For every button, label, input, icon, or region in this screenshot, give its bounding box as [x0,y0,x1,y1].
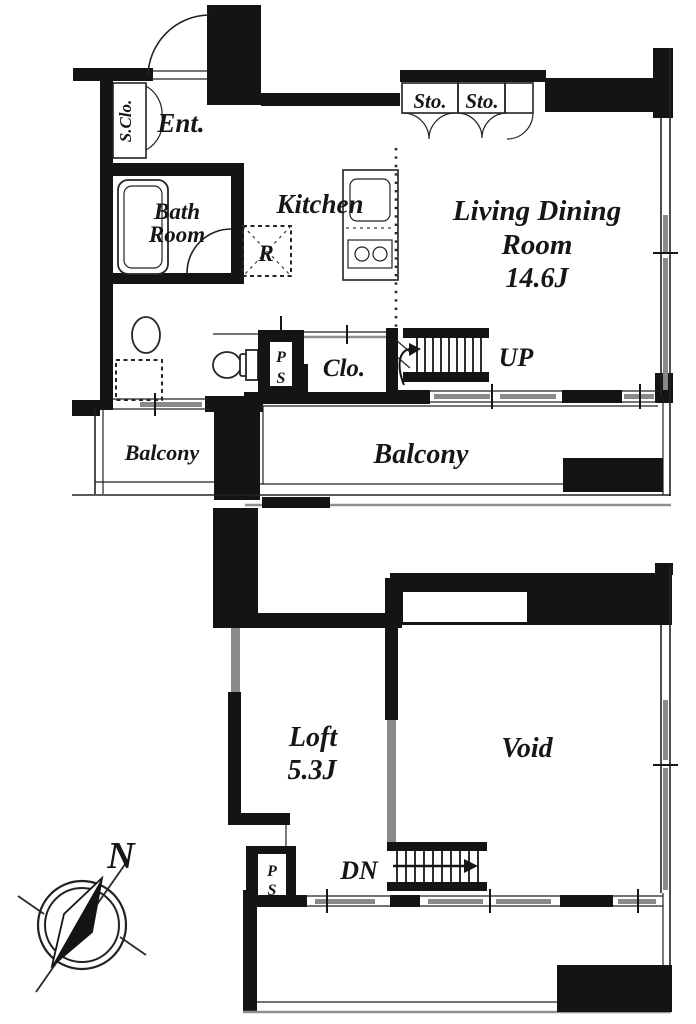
stairs-down-arrowhead-icon [464,859,478,873]
floor-plan-drawing: S.Clo. Ent. Bath Room [0,0,696,1024]
washroom [116,317,262,400]
pipe-space-upper: P S [258,330,308,392]
toilet-icon [213,350,258,380]
lower-right-window [653,625,678,893]
storage-closets: Sto. Sto. [402,83,533,139]
loft-label-line2: 5.3J [288,755,338,786]
folding-door-arc-icon [403,113,455,139]
pipe-space-upper-s: S [277,370,286,387]
refrigerator-space: R [243,226,291,276]
balcony-small: Balcony [95,409,214,494]
compass-north-label: N [106,835,136,877]
kitchen-label: Kitchen [275,189,363,219]
closet: Clo. [304,325,386,382]
balcony-large-label: Balcony [373,439,469,470]
entrance-door-arc-icon [148,15,209,79]
lower-terrace [243,890,672,1012]
bathroom-label-line2: Room [148,222,205,247]
living-dining-label-line3: 14.6J [506,263,570,294]
storage-left-label: Sto. [413,89,446,113]
stove-icon [348,240,392,268]
stairs-down: DN [339,842,487,891]
balcony-small-label: Balcony [124,440,200,465]
bathroom: Bath Room [118,180,231,274]
upper-floor-plan: S.Clo. Ent. Bath Room [72,5,678,500]
kitchen: Kitchen [275,148,398,334]
shoe-closet-label: S.Clo. [116,100,135,143]
lower-floor-plan: P S DN [213,497,678,1012]
living-dining-label-line2: Room [501,229,573,261]
stairs-up-arrowhead-icon [409,343,421,356]
loft-label-line1: Loft [288,722,338,753]
upper-right-window [653,117,678,397]
floor-plan-image: S.Clo. Ent. Bath Room [0,0,696,1024]
void-label: Void [501,733,553,764]
loft-terrace-windows [243,889,663,913]
closet-label: Clo. [323,355,365,382]
folding-door-arc-icon [457,113,507,138]
stairs-up: UP [396,328,534,385]
shoe-closet: S.Clo. [113,83,163,158]
living-dining-room: Living Dining Room 14.6J [452,195,621,294]
storage-right-label: Sto. [465,89,498,113]
wash-basin-icon [132,317,160,353]
lower-walls [213,497,673,1012]
refrigerator-label: R [257,241,273,266]
stairs-down-label: DN [339,856,379,885]
bathroom-label-line1: Bath [153,199,200,224]
folding-door-arc-icon [507,113,533,139]
entrance-label: Ent. [156,108,204,138]
stairs-up-label: UP [499,343,535,372]
living-dining-label-line1: Living Dining [452,195,621,227]
pipe-space-lower-p: P [266,863,277,880]
pipe-space-upper-p: P [275,349,286,366]
compass-rose: N [18,835,146,992]
